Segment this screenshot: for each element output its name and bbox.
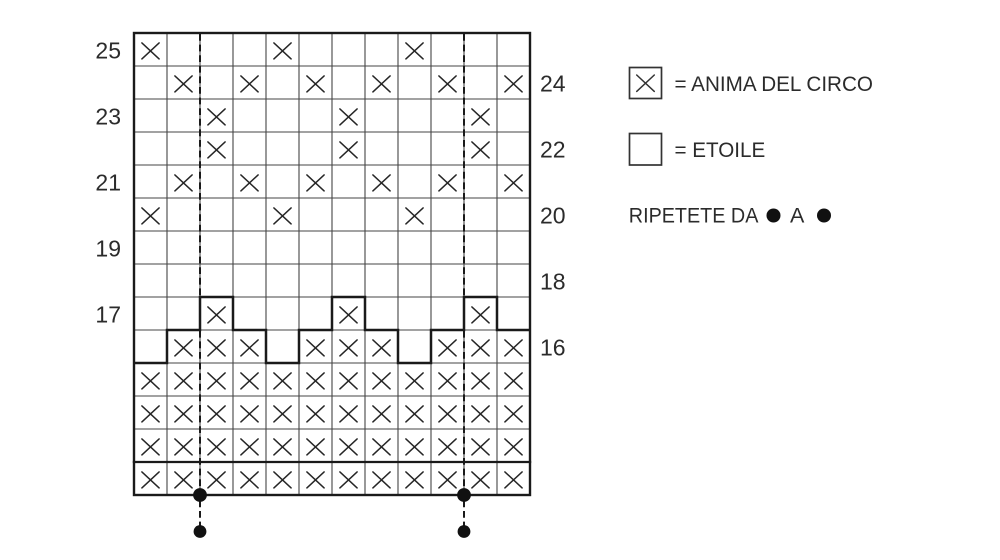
svg-text:= ETOILE: = ETOILE (675, 139, 766, 162)
svg-text:A: A (790, 204, 805, 228)
svg-text:20: 20 (540, 202, 566, 228)
svg-text:17: 17 (95, 301, 121, 327)
svg-text:22: 22 (540, 136, 566, 162)
svg-text:= ANIMA DEL CIRCO: = ANIMA DEL CIRCO (675, 73, 873, 96)
svg-text:RIPETETE DA: RIPETETE DA (629, 204, 759, 228)
svg-text:18: 18 (540, 268, 566, 294)
svg-text:16: 16 (540, 334, 566, 360)
svg-text:21: 21 (95, 169, 121, 195)
svg-text:24: 24 (540, 70, 566, 96)
svg-text:19: 19 (95, 235, 121, 261)
svg-text:25: 25 (95, 37, 121, 63)
svg-text:23: 23 (95, 103, 121, 129)
